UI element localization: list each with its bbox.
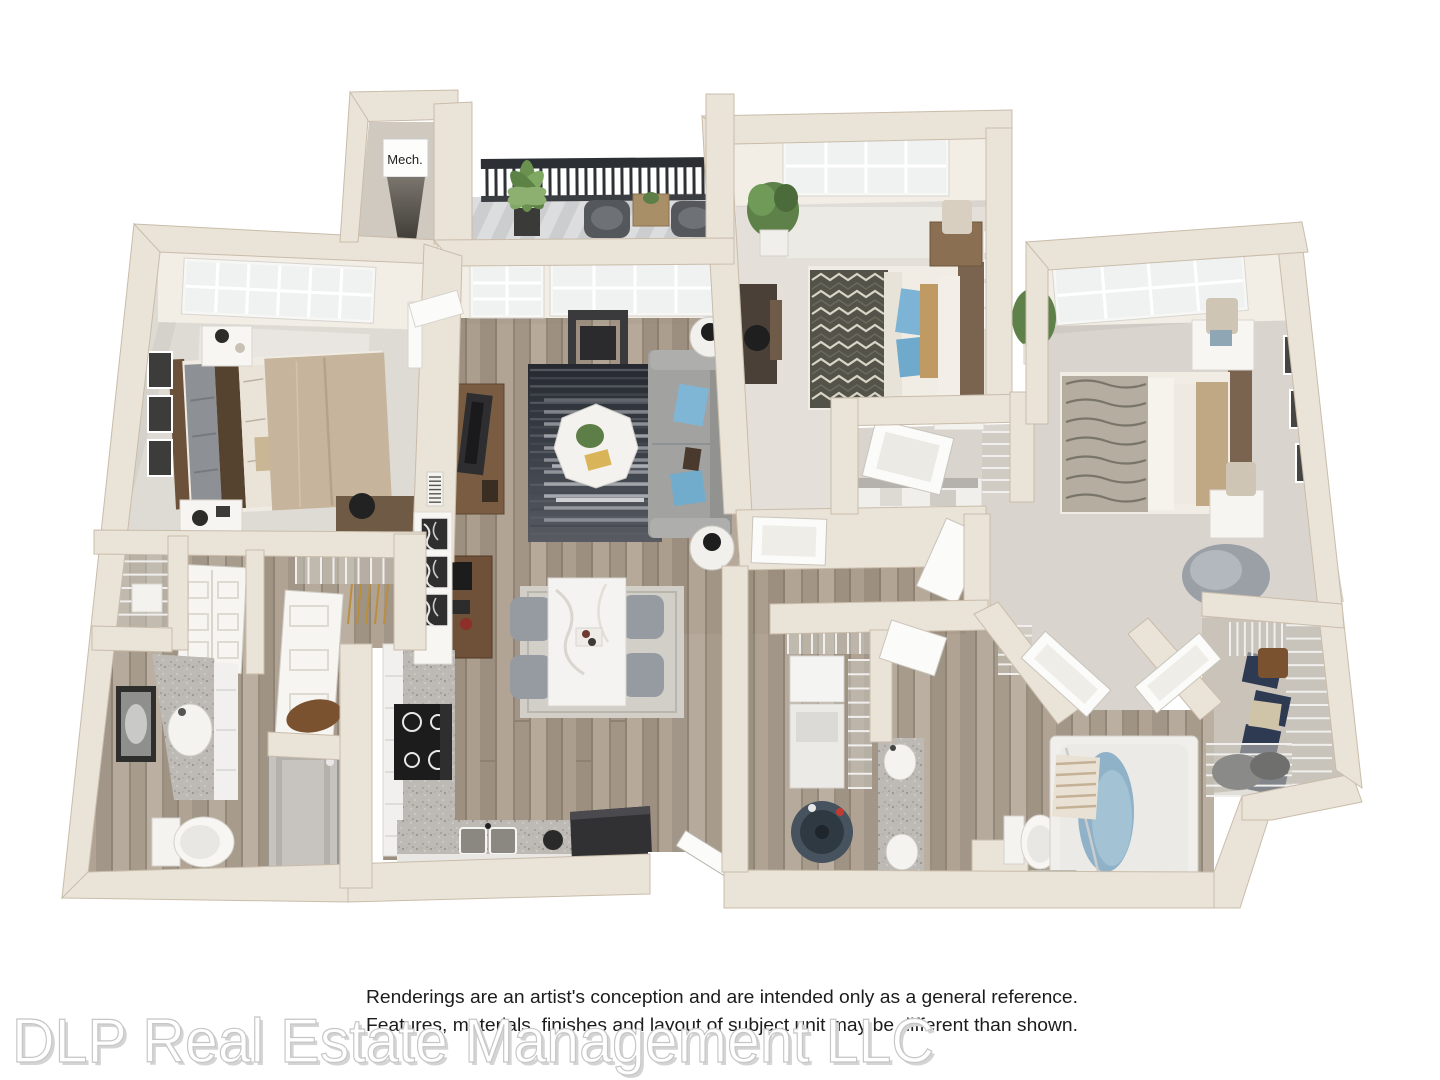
svg-text:DLP Real Estate Management LLC: DLP Real Estate Management LLC (12, 1007, 934, 1076)
svg-text:Mech.: Mech. (387, 152, 422, 167)
svg-text:Renderings are an artist's con: Renderings are an artist's conception an… (366, 986, 1078, 1007)
